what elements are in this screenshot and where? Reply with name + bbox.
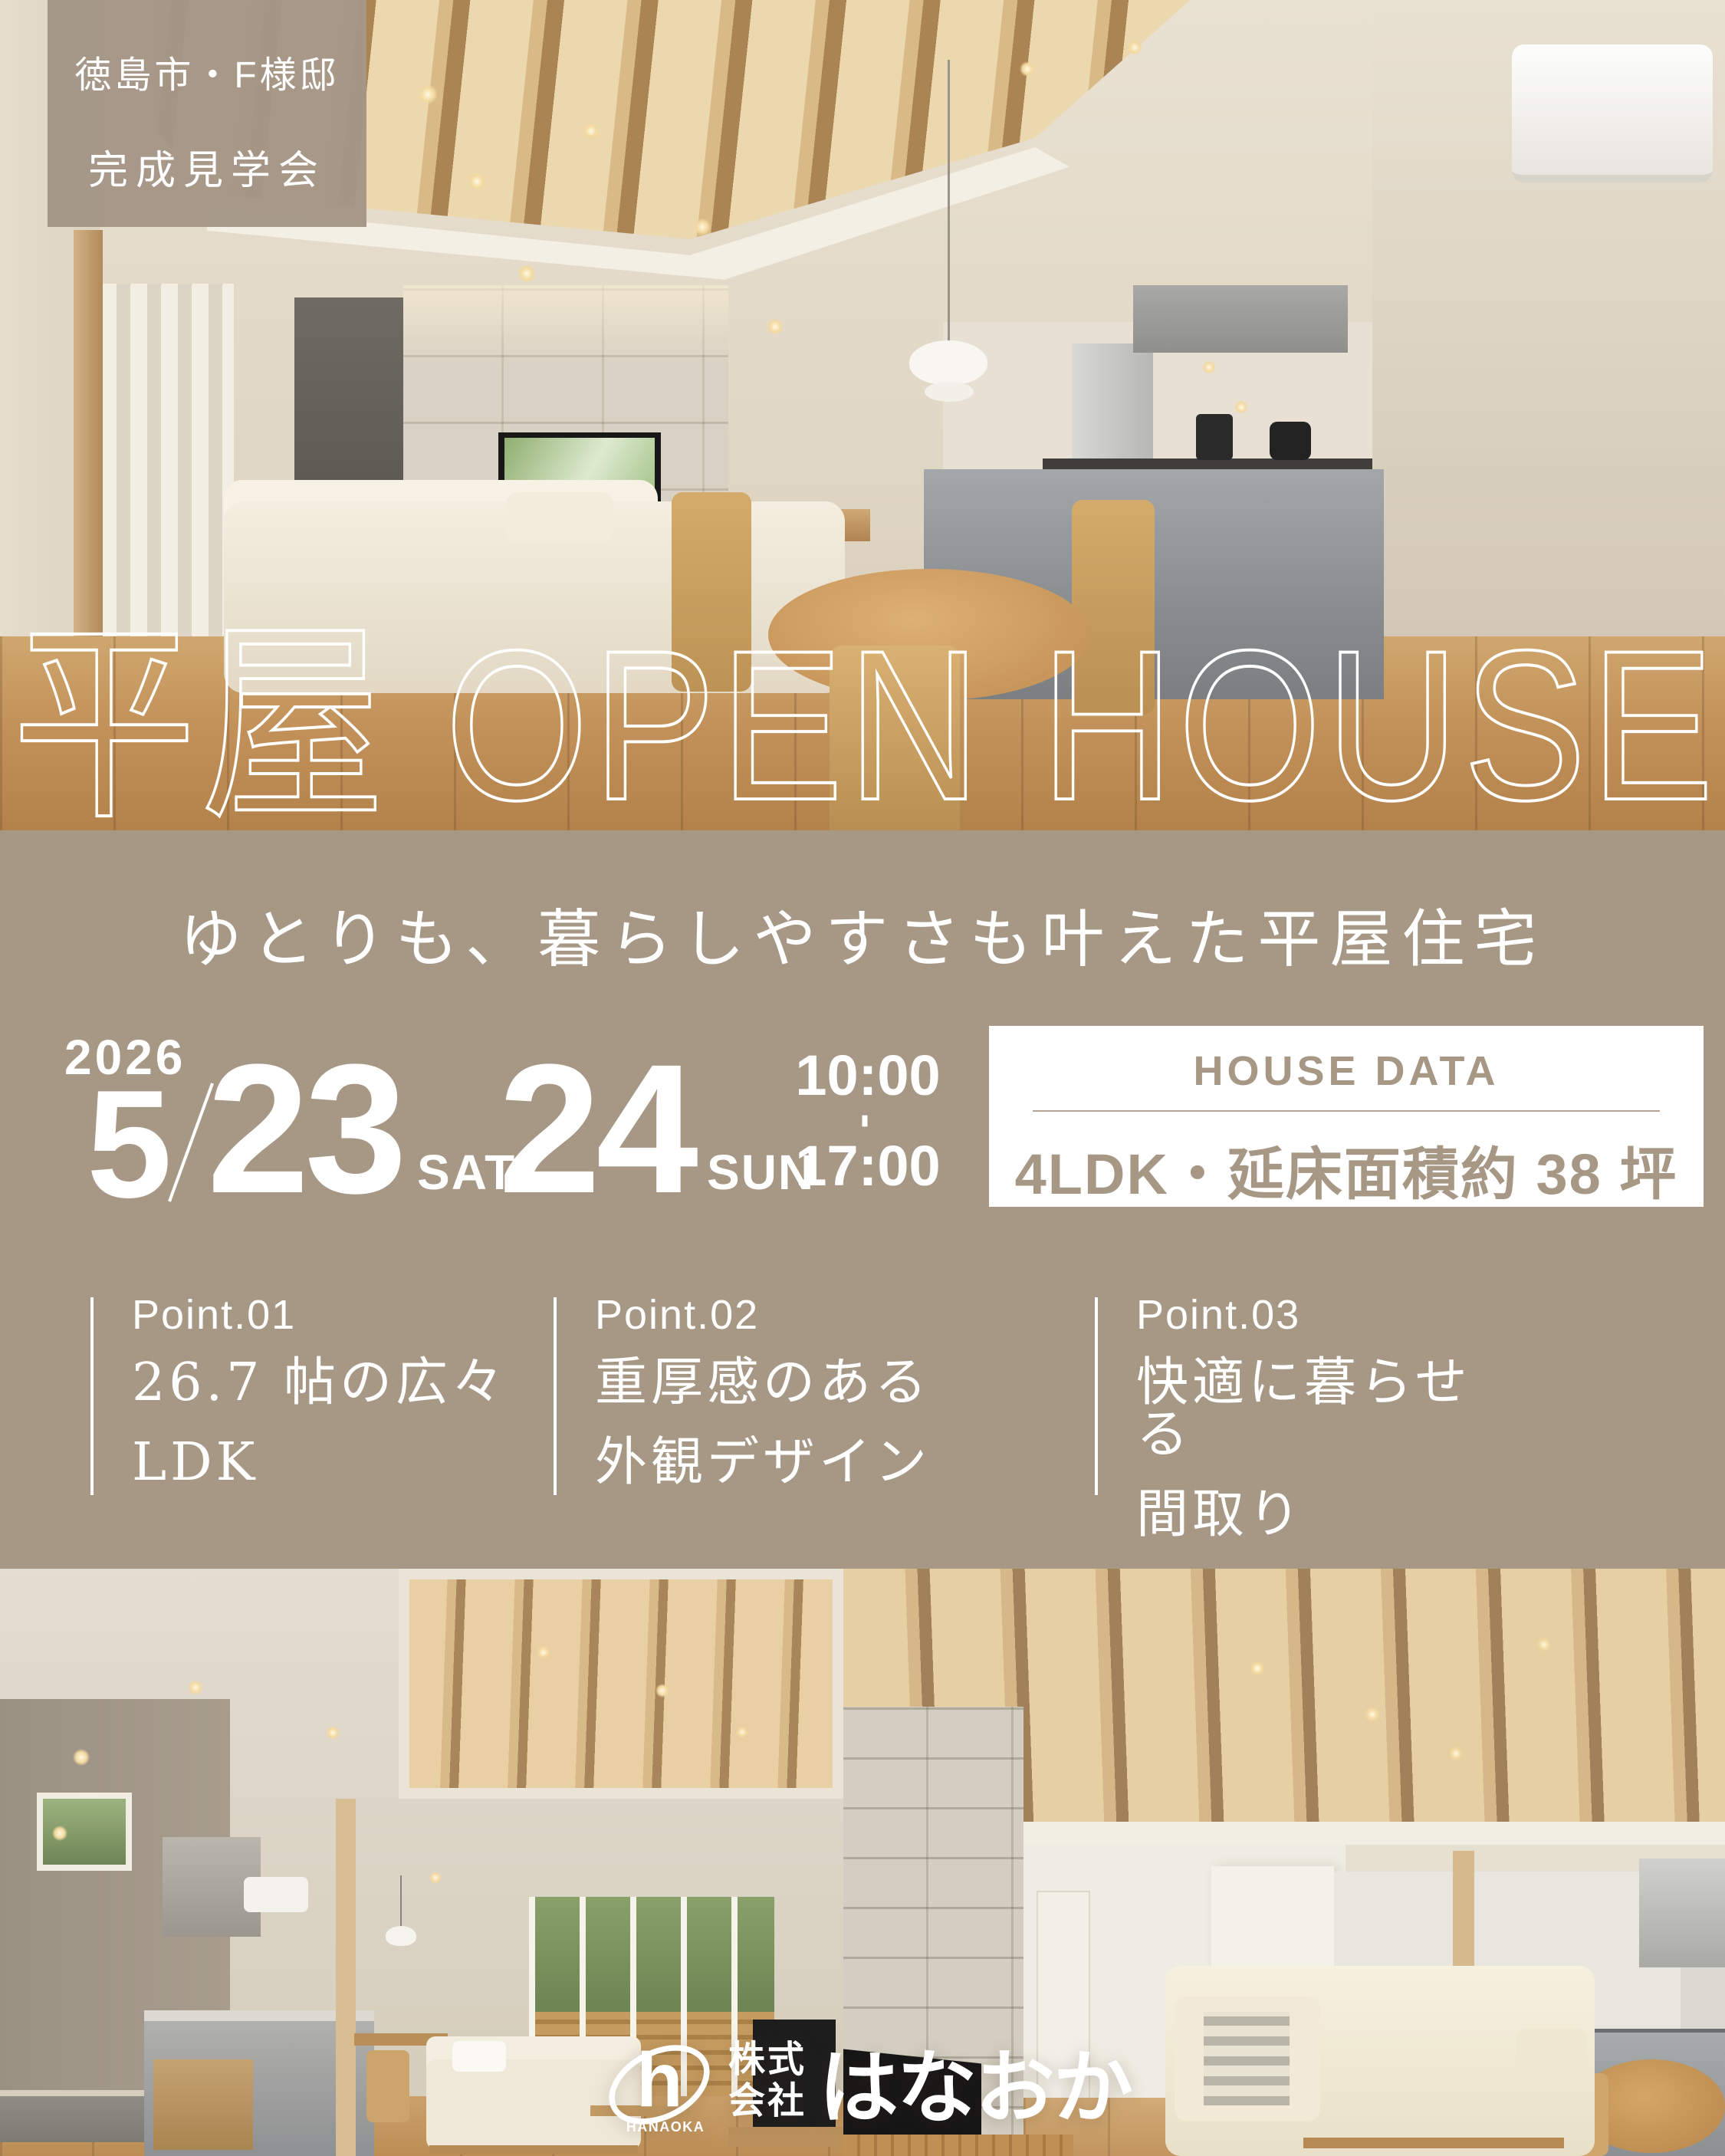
downlight-dot <box>326 1726 340 1740</box>
hero-pendant-tier <box>925 382 974 402</box>
point-02-label: Point.02 <box>595 1294 983 1336</box>
event-day-1: 23 <box>207 1037 402 1221</box>
downlight-dot <box>767 318 784 335</box>
br-sofa-cushion <box>1516 2029 1587 2084</box>
badge-location: 徳島市・F様邸 <box>48 44 366 98</box>
house-data-value: 4LDK・延床面積約 38 坪 <box>989 1129 1704 1211</box>
point-01-text-line2: LDK <box>132 1437 520 1489</box>
hanaoka-logo-icon: h HANAOKA <box>604 2023 719 2138</box>
br-range-hood <box>1639 1859 1725 1967</box>
br-throw-blanket <box>1204 2012 1290 2105</box>
downlight-dot <box>1537 1638 1551 1652</box>
point-02-text-line2: 外観デザイン <box>595 1437 983 1489</box>
downlight-dot <box>188 1680 203 1695</box>
hero-range-hood <box>1133 285 1348 353</box>
logo-company-line2: 会社 <box>728 2081 807 2122</box>
downlight-dot <box>1250 1661 1265 1676</box>
house-data-card: HOUSE DATA 4LDK・延床面積約 38 坪 <box>989 1026 1704 1207</box>
downlight-dot <box>52 1826 67 1841</box>
subtitle: ゆとりも、暮らしやすさも叶えた平屋住宅 <box>0 888 1725 979</box>
point-03: Point.03 快適に暮らせる 間取り <box>1095 1294 1524 1541</box>
point-03-text-line1: 快適に暮らせる <box>1136 1357 1524 1461</box>
hero-sofa-cushion <box>506 492 613 543</box>
bl-pendant-shade <box>386 1926 416 1946</box>
logo-mark-caption: HANAOKA <box>626 2119 705 2135</box>
point-01: Point.01 26.7 帖の広々 LDK <box>90 1294 520 1489</box>
event-day-2: 24 <box>498 1037 694 1221</box>
br-kitchen-shelf <box>1681 1967 1725 2038</box>
logo-company-line1: 株式 <box>728 2039 807 2081</box>
point-02-text-line1: 重厚感のある <box>595 1357 983 1409</box>
point-02-divider <box>554 1297 557 1495</box>
point-03-divider <box>1095 1297 1098 1495</box>
hero-fridge <box>1072 343 1153 471</box>
point-01-label: Point.01 <box>132 1294 520 1336</box>
downlight-dot <box>537 1645 550 1659</box>
bl-nook-chair <box>366 2050 409 2122</box>
hero-pendant-cord <box>948 60 950 343</box>
bl-air-conditioner <box>244 1877 308 1912</box>
house-data-heading: HOUSE DATA <box>989 1047 1704 1095</box>
downlight-dot <box>655 1684 669 1698</box>
logo-company-name: はなおか <box>819 2023 1132 2138</box>
downlight-dot <box>694 219 711 235</box>
downlight-dot <box>1020 61 1035 77</box>
downlight-dot <box>1127 40 1142 55</box>
bl-sofa-cushion <box>452 2041 506 2072</box>
downlight-dot <box>468 173 486 191</box>
point-02: Point.02 重厚感のある 外観デザイン <box>554 1294 983 1489</box>
company-logo: h HANAOKA 株式 会社 はなおか <box>604 2023 1132 2138</box>
downlight-dot <box>517 265 536 283</box>
downlight-dot <box>73 1749 90 1766</box>
br-sofa-base <box>1303 2138 1564 2148</box>
downlight-dot <box>1449 1747 1463 1760</box>
logo-company-type: 株式 会社 <box>728 2039 807 2122</box>
hero-air-conditioner <box>1512 44 1713 182</box>
downlight-dot <box>429 1872 442 1884</box>
event-hours: 10:00 - 17:00 <box>790 1047 946 1195</box>
hero-coffee-maker <box>1196 414 1233 460</box>
bl-wood-post <box>336 1799 356 2156</box>
bl-sofa-base <box>429 2145 638 2154</box>
bl-island-wood-front <box>153 2059 253 2150</box>
bl-pendant-cord <box>400 1875 402 1929</box>
point-01-divider <box>90 1297 94 1495</box>
bl-window <box>37 1793 132 1871</box>
bl-beam-recess <box>399 1569 843 1799</box>
main-title: 平屋 OPEN HOUSE <box>12 619 1718 832</box>
hero-kettle <box>1270 422 1311 460</box>
hero-pendant-shade <box>909 340 987 385</box>
badge-event-type: 完成見学会 <box>48 138 366 196</box>
house-data-divider <box>1033 1110 1660 1112</box>
downlight-dot <box>418 84 438 104</box>
point-03-label: Point.03 <box>1136 1294 1524 1336</box>
downlight-dot <box>736 1726 748 1738</box>
downlight-dot <box>1202 360 1216 374</box>
downlight-dot <box>1365 1707 1380 1722</box>
event-time-separator: - <box>851 1043 885 1199</box>
flyer-root: 徳島市・F様邸 完成見学会 平屋 OPEN HOUSE ゆとりも、暮らしやすさも… <box>0 0 1725 2156</box>
event-month: 5 <box>87 1068 172 1221</box>
logo-mark-letter: h <box>636 2037 682 2123</box>
downlight-dot <box>1234 400 1248 414</box>
point-03-text-line2: 間取り <box>1136 1489 1524 1541</box>
location-badge: 徳島市・F様邸 完成見学会 <box>48 0 366 227</box>
downlight-dot <box>583 123 600 140</box>
point-01-text-line1: 26.7 帖の広々 <box>132 1357 520 1409</box>
